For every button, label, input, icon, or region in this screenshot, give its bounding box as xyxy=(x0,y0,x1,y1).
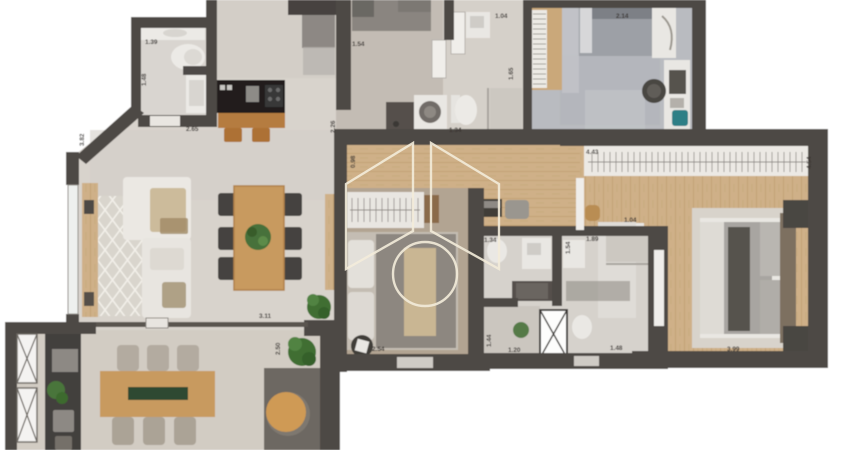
svg-text:1.20: 1.20 xyxy=(508,347,521,354)
svg-text:2.26: 2.26 xyxy=(330,120,337,133)
svg-text:4.43: 4.43 xyxy=(586,149,599,156)
svg-text:2.14: 2.14 xyxy=(616,13,629,20)
svg-text:1.04: 1.04 xyxy=(495,13,508,20)
svg-text:1.04: 1.04 xyxy=(624,217,637,224)
svg-text:1.65: 1.65 xyxy=(508,67,515,80)
svg-text:1.48: 1.48 xyxy=(610,345,623,352)
svg-text:2.54: 2.54 xyxy=(372,346,385,353)
svg-text:1.54: 1.54 xyxy=(565,241,572,254)
svg-text:1.34: 1.34 xyxy=(449,127,462,134)
svg-text:4.54: 4.54 xyxy=(806,156,813,169)
svg-text:1.39: 1.39 xyxy=(145,39,158,46)
svg-text:3.99: 3.99 xyxy=(727,346,740,353)
svg-text:1.54: 1.54 xyxy=(352,41,365,48)
svg-text:1.34: 1.34 xyxy=(484,237,497,244)
svg-text:2.65: 2.65 xyxy=(186,126,199,133)
svg-text:1.48: 1.48 xyxy=(141,73,148,86)
svg-text:3.11: 3.11 xyxy=(259,313,272,320)
svg-text:1.44: 1.44 xyxy=(486,334,493,347)
svg-text:3.82: 3.82 xyxy=(79,133,86,146)
svg-text:2.50: 2.50 xyxy=(275,342,282,355)
svg-text:1.89: 1.89 xyxy=(586,236,599,243)
svg-text:0.98: 0.98 xyxy=(350,155,357,168)
